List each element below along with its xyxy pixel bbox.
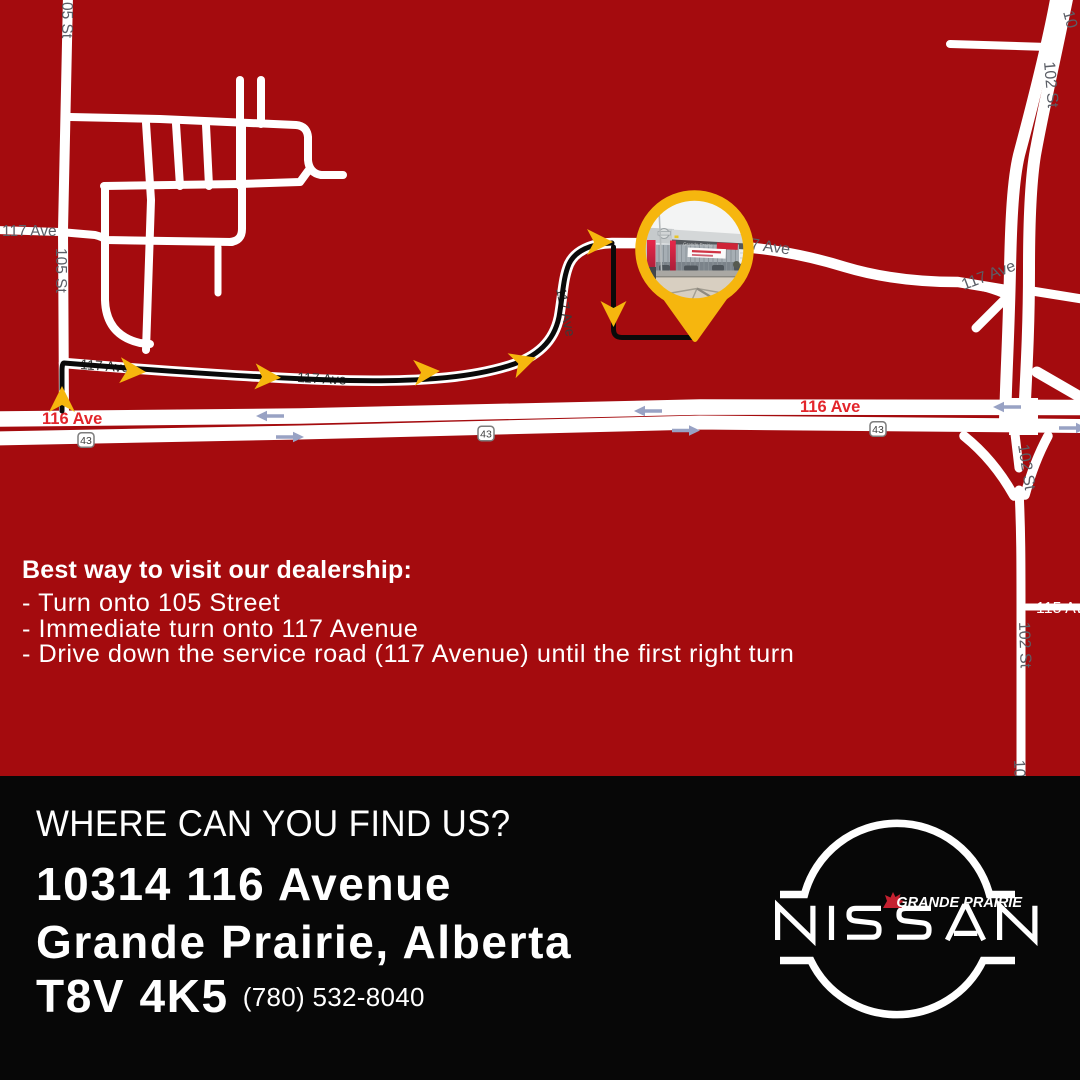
- svg-text:GRANDE PRAIRIE: GRANDE PRAIRIE: [896, 895, 1023, 911]
- svg-text:117 Ave: 117 Ave: [2, 223, 57, 240]
- svg-text:105 St: 105 St: [52, 248, 69, 294]
- svg-text:116 Ave: 116 Ave: [800, 398, 860, 416]
- svg-text:116 Ave: 116 Ave: [42, 410, 102, 428]
- svg-text:43: 43: [480, 429, 492, 441]
- svg-text:115 Ave: 115 Ave: [1036, 600, 1080, 617]
- svg-text:102 St: 102 St: [1015, 622, 1034, 669]
- svg-text:43: 43: [80, 435, 92, 447]
- svg-text:05 St: 05 St: [58, 2, 75, 39]
- svg-text:43: 43: [872, 424, 884, 436]
- svg-text:10: 10: [1010, 760, 1028, 776]
